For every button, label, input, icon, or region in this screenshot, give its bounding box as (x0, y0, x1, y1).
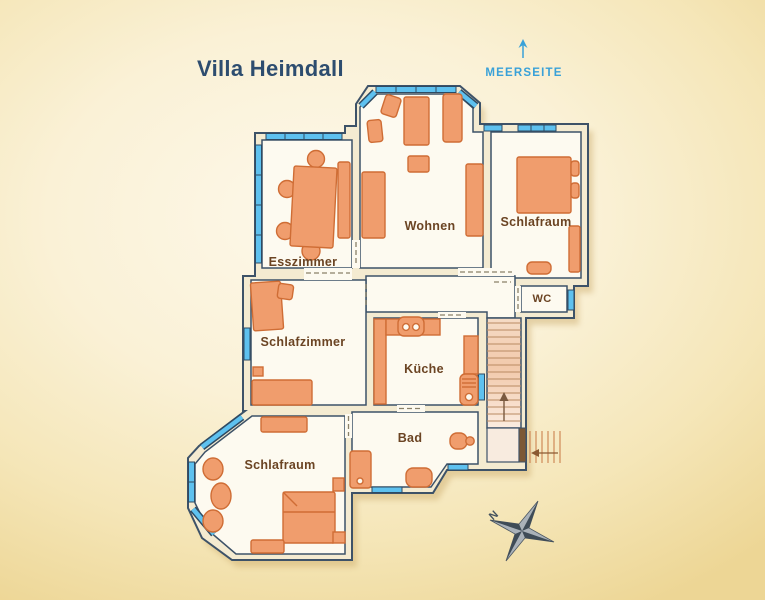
bed (517, 157, 571, 213)
entrance-steps (530, 431, 560, 463)
floor-plan-svg: Villa Heimdall MEERSEITE (0, 0, 765, 600)
label-bad: Bad (398, 431, 423, 445)
sink-basin (465, 393, 472, 400)
coffee-table (408, 156, 429, 172)
label-wc: WC (533, 293, 552, 305)
dining-table (290, 166, 337, 248)
compass-rose: N (487, 501, 554, 561)
table (404, 97, 429, 145)
sideboard (338, 162, 350, 238)
kitchen-counter (374, 319, 386, 404)
chair (308, 151, 325, 168)
toilet-tank (466, 437, 474, 445)
stair-landing (487, 428, 519, 462)
staircase (487, 318, 526, 462)
cabinet (466, 164, 483, 236)
drain (357, 478, 363, 484)
nightstand (333, 532, 345, 543)
label-schlafzimmer: Schlafzimmer (261, 335, 346, 349)
toilet (450, 433, 467, 449)
armchair (367, 119, 383, 142)
wardrobe (569, 226, 580, 272)
compass-star-dark-halves (490, 501, 554, 561)
label-kueche: Küche (404, 362, 444, 376)
dresser (251, 540, 284, 553)
nightstand (253, 367, 263, 376)
label-schlafraum-bottom: Schlafraum (244, 458, 315, 472)
floor-plan-page: Villa Heimdall MEERSEITE (0, 0, 765, 600)
bench (527, 262, 551, 274)
sea-side-label: MEERSEITE (485, 67, 562, 79)
fridge (464, 336, 478, 374)
bath-sink (406, 468, 432, 487)
label-wohnen: Wohnen (405, 219, 456, 233)
burner (413, 324, 420, 331)
page-title: Villa Heimdall (197, 56, 344, 81)
compass-north-label: N (487, 509, 501, 523)
stair-landing-wall (519, 428, 526, 462)
entrance-arrow-head-icon (531, 449, 539, 457)
stove (398, 317, 424, 336)
side-table (211, 483, 231, 509)
armchair (203, 510, 223, 532)
label-schlafraum-top: Schlafraum (500, 215, 571, 229)
label-esszimmer: Esszimmer (269, 255, 338, 269)
pillow (277, 283, 294, 300)
pillow (571, 183, 579, 198)
sea-side-marker: MEERSEITE (485, 39, 562, 79)
nightstand (333, 478, 344, 491)
cabinet (362, 172, 385, 238)
burner (403, 324, 410, 331)
armchair (203, 458, 223, 480)
sofa (443, 94, 462, 142)
wardrobe (252, 380, 312, 405)
wardrobe (261, 417, 307, 432)
pillow (571, 161, 579, 176)
